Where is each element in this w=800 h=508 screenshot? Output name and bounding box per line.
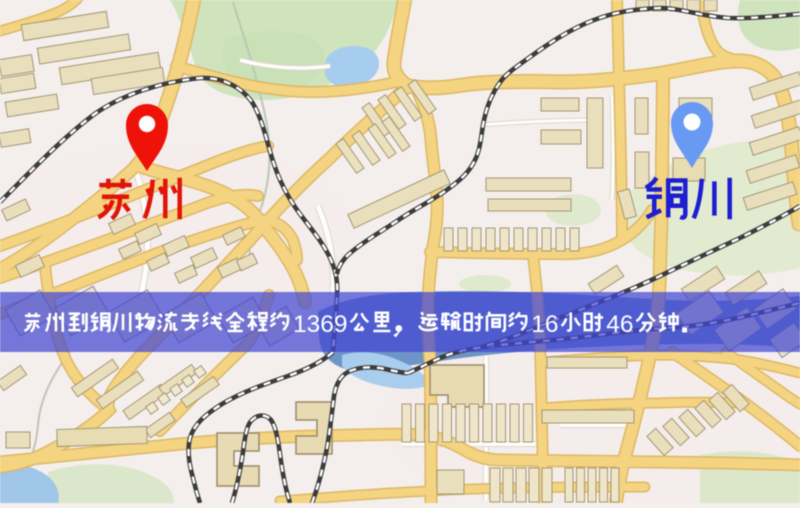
svg-text:16: 16: [531, 311, 558, 338]
svg-text:46: 46: [606, 311, 633, 338]
svg-text:1369: 1369: [293, 311, 348, 338]
